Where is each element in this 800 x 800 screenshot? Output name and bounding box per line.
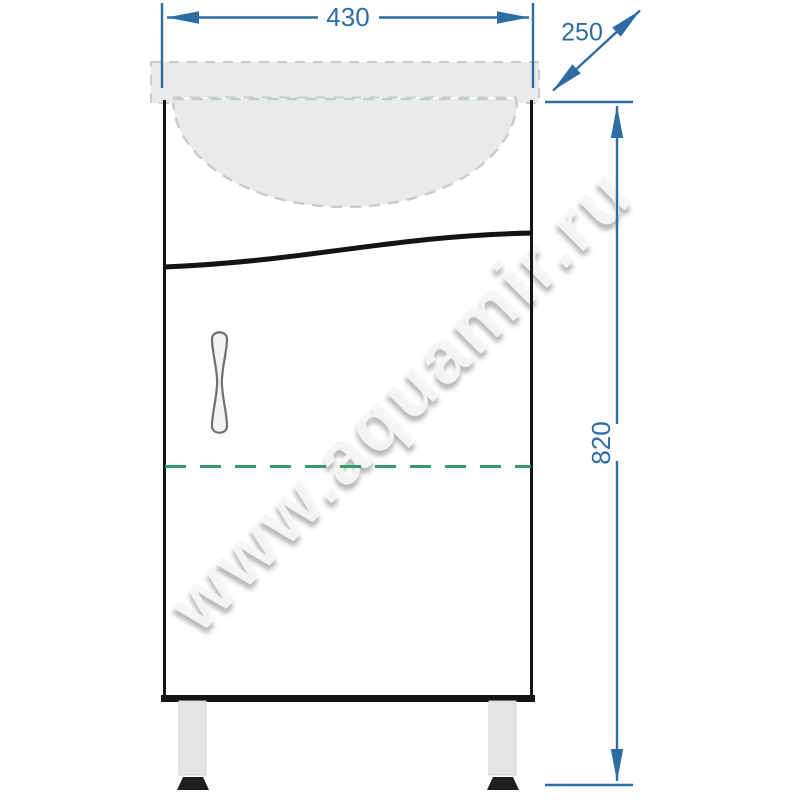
- technical-drawing-canvas: www.aquamir.ru: [0, 0, 800, 800]
- technical-drawing-svg: [0, 0, 800, 800]
- sink-rim: [151, 62, 539, 103]
- door-top-curve: [164, 233, 532, 267]
- door-handle: [212, 332, 227, 433]
- right-foot: [487, 777, 519, 790]
- legs: [177, 701, 519, 790]
- left-leg: [179, 701, 206, 775]
- right-leg: [489, 701, 516, 775]
- depth-dim-line-lower: [553, 51, 596, 91]
- left-foot: [177, 777, 209, 790]
- width-dimension-label: 430: [326, 4, 369, 30]
- sink-bowl: [173, 99, 517, 207]
- sink: [151, 62, 539, 207]
- height-dimension-label: 820: [588, 421, 614, 464]
- depth-dimension-label: 250: [561, 21, 603, 46]
